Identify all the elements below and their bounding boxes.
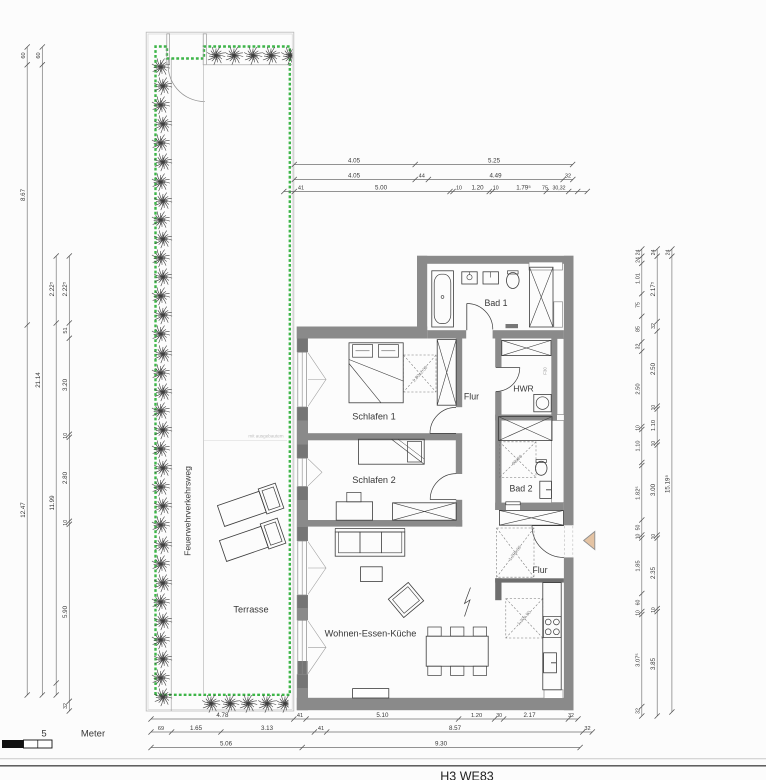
svg-text:3.00: 3.00 <box>650 483 657 496</box>
svg-text:32: 32 <box>636 344 642 350</box>
svg-text:H3 WE83: H3 WE83 <box>440 770 494 780</box>
svg-text:10: 10 <box>63 433 69 439</box>
svg-text:1.20: 1.20 <box>471 713 482 719</box>
svg-text:1.20x.60: 1.20x.60 <box>507 544 522 561</box>
svg-text:2.22⁵: 2.22⁵ <box>62 281 69 296</box>
svg-text:3.85: 3.85 <box>650 657 657 670</box>
svg-text:60: 60 <box>21 52 27 58</box>
svg-text:F30: F30 <box>543 367 548 375</box>
svg-text:50: 50 <box>636 525 642 531</box>
svg-text:75: 75 <box>542 185 548 191</box>
svg-text:30: 30 <box>496 713 502 719</box>
svg-text:10: 10 <box>651 441 657 447</box>
svg-text:8.67: 8.67 <box>20 188 27 201</box>
svg-text:32: 32 <box>636 708 642 714</box>
svg-text:Flur: Flur <box>532 565 547 575</box>
svg-text:Terrasse: Terrasse <box>233 605 268 615</box>
svg-text:69: 69 <box>158 726 164 732</box>
svg-text:Meter: Meter <box>81 729 105 740</box>
svg-text:10: 10 <box>651 534 657 540</box>
svg-text:2.50: 2.50 <box>650 362 657 375</box>
svg-text:10: 10 <box>63 520 69 526</box>
svg-text:1.20: 1.20 <box>471 184 484 191</box>
svg-text:8.57: 8.57 <box>449 725 462 732</box>
svg-text:2.17: 2.17 <box>523 712 536 719</box>
svg-text:51: 51 <box>63 327 69 333</box>
svg-text:4.78: 4.78 <box>216 712 229 719</box>
svg-text:1.10: 1.10 <box>636 441 642 452</box>
svg-text:21.14: 21.14 <box>35 372 42 388</box>
svg-text:10: 10 <box>636 610 642 616</box>
svg-text:12.47: 12.47 <box>20 502 27 518</box>
svg-text:10: 10 <box>456 185 462 191</box>
svg-text:5.25: 5.25 <box>488 157 501 164</box>
svg-text:32: 32 <box>63 703 69 709</box>
svg-text:24: 24 <box>636 257 642 263</box>
svg-text:24: 24 <box>636 250 642 256</box>
svg-text:5.90: 5.90 <box>62 605 69 618</box>
svg-text:HWR: HWR <box>513 384 534 394</box>
svg-text:5.10: 5.10 <box>376 712 389 719</box>
svg-text:10: 10 <box>493 185 499 191</box>
svg-text:10: 10 <box>636 534 642 540</box>
svg-text:5.00: 5.00 <box>375 184 388 191</box>
svg-text:4.05: 4.05 <box>348 172 361 179</box>
svg-text:10: 10 <box>651 405 657 411</box>
svg-text:5: 5 <box>41 729 46 740</box>
svg-text:32: 32 <box>651 323 657 329</box>
svg-text:24: 24 <box>651 250 657 256</box>
svg-text:1.01: 1.01 <box>636 273 642 284</box>
svg-text:5.06: 5.06 <box>220 740 233 747</box>
svg-text:1.65: 1.65 <box>190 725 203 732</box>
svg-text:2.17⁵: 2.17⁵ <box>650 281 657 296</box>
svg-text:32: 32 <box>568 713 574 719</box>
svg-text:Bad 1: Bad 1 <box>485 298 508 308</box>
svg-text:41: 41 <box>298 185 304 191</box>
svg-text:2.50: 2.50 <box>636 383 642 394</box>
svg-text:11.99: 11.99 <box>49 495 56 511</box>
svg-text:2.35: 2.35 <box>650 566 657 579</box>
svg-text:10: 10 <box>636 425 642 431</box>
svg-text:Bad 2: Bad 2 <box>510 484 533 494</box>
svg-text:10: 10 <box>651 607 657 613</box>
svg-text:1.85: 1.85 <box>636 560 642 571</box>
svg-text:85: 85 <box>636 326 642 332</box>
svg-text:32: 32 <box>565 173 571 179</box>
svg-text:90x90: 90x90 <box>511 453 524 466</box>
svg-text:Flur: Flur <box>464 392 479 402</box>
svg-text:60: 60 <box>636 600 642 606</box>
svg-text:Feuerwehrverkehrsweg: Feuerwehrverkehrsweg <box>183 466 193 556</box>
svg-text:2.80: 2.80 <box>62 471 69 484</box>
svg-text:24: 24 <box>666 250 672 256</box>
svg-text:41: 41 <box>318 726 324 732</box>
svg-text:Schlafen 2: Schlafen 2 <box>352 475 395 485</box>
svg-text:44: 44 <box>419 173 425 179</box>
svg-text:1.82⁵: 1.82⁵ <box>635 486 642 500</box>
svg-text:1.80x2.00: 1.80x2.00 <box>411 364 429 383</box>
svg-text:4.05: 4.05 <box>348 157 361 164</box>
svg-text:15.19⁵: 15.19⁵ <box>665 475 672 493</box>
svg-text:Schlafen 1: Schlafen 1 <box>352 412 395 422</box>
svg-text:3.07⁵: 3.07⁵ <box>635 653 642 667</box>
svg-text:Wohnen-Essen-Küche: Wohnen-Essen-Küche <box>325 629 417 639</box>
svg-text:41: 41 <box>297 713 303 719</box>
svg-text:1.79⁵: 1.79⁵ <box>516 184 531 191</box>
svg-text:4.49: 4.49 <box>489 172 502 179</box>
svg-text:60: 60 <box>36 52 42 58</box>
svg-text:30,32: 30,32 <box>553 185 566 191</box>
svg-text:2.22⁵: 2.22⁵ <box>49 281 56 296</box>
svg-text:3.13: 3.13 <box>261 725 274 732</box>
svg-text:9.30: 9.30 <box>435 740 448 747</box>
svg-text:mit ausgebautem: mit ausgebautem <box>248 434 283 439</box>
svg-text:1.10: 1.10 <box>651 420 657 431</box>
svg-text:75: 75 <box>636 302 642 308</box>
svg-text:32: 32 <box>584 726 590 732</box>
svg-text:1.20x.90: 1.20x.90 <box>516 610 532 627</box>
svg-text:3.20: 3.20 <box>62 378 69 391</box>
